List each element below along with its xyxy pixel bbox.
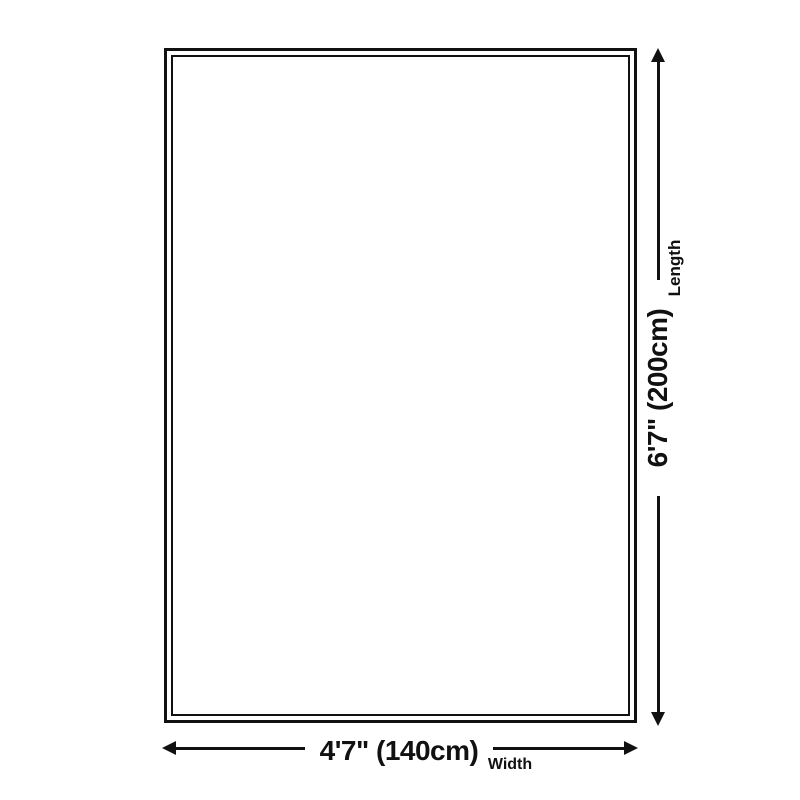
width-dimension-line-right	[493, 747, 624, 750]
length-label: Length	[665, 240, 685, 297]
width-dimension-line-left	[176, 747, 305, 750]
length-arrow-down-icon	[651, 712, 665, 726]
length-dimension-line-lower	[657, 496, 660, 714]
width-value: 4'7" (140cm)	[320, 735, 479, 767]
length-value: 6'7" (200cm)	[642, 309, 674, 468]
width-label: Width	[488, 756, 532, 774]
product-outline-inner	[171, 55, 630, 716]
width-arrow-right-icon	[624, 741, 638, 755]
width-arrow-left-icon	[162, 741, 176, 755]
dimension-diagram: Length 6'7" (200cm) 4'7" (140cm) Width	[0, 0, 800, 800]
product-outline-outer	[164, 48, 637, 723]
length-dimension-line-upper	[657, 60, 660, 280]
